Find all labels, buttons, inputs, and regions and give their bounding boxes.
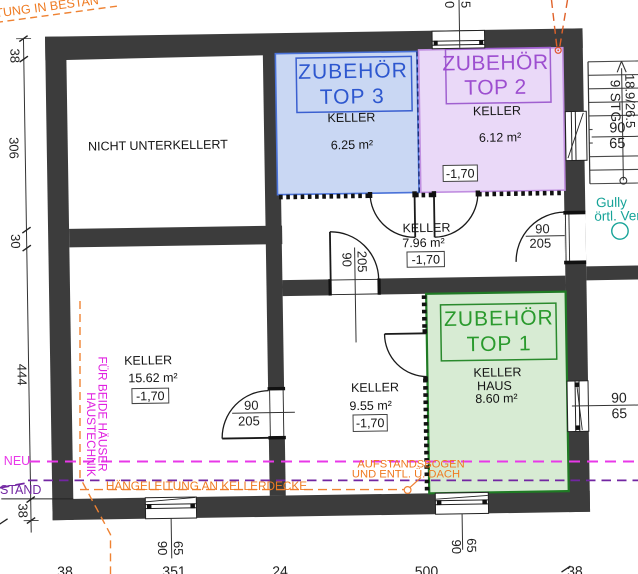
svg-text:444: 444 [14, 364, 29, 386]
svg-text:65: 65 [171, 541, 186, 556]
svg-text:KELLER: KELLER [351, 380, 399, 395]
svg-text:-1,70: -1,70 [136, 389, 165, 403]
svg-text:24: 24 [272, 563, 288, 574]
svg-text:-1,70: -1,70 [446, 167, 475, 181]
svg-text:65: 65 [611, 405, 627, 421]
svg-text:8.60 m²: 8.60 m² [475, 391, 518, 406]
svg-text:6.12 m²: 6.12 m² [479, 130, 522, 145]
svg-text:5: 5 [458, 1, 473, 8]
svg-text:38: 38 [7, 48, 22, 63]
svg-text:351: 351 [162, 563, 186, 574]
svg-text:KELLER: KELLER [327, 110, 375, 125]
svg-text:65: 65 [464, 538, 479, 553]
svg-text:306: 306 [6, 137, 21, 159]
svg-text:TOP 3: TOP 3 [320, 85, 385, 109]
svg-text:E NEU: E NEU [0, 454, 30, 468]
svg-text:TOP 1: TOP 1 [466, 332, 531, 356]
svg-text:90: 90 [155, 541, 170, 556]
svg-text:KELLER: KELLER [124, 353, 172, 368]
svg-text:NICHT UNTERKELLERT: NICHT UNTERKELLERT [88, 137, 228, 153]
svg-text:90: 90 [611, 389, 627, 405]
svg-text:KELLER: KELLER [402, 221, 450, 236]
svg-text:KELLER: KELLER [473, 104, 521, 119]
svg-text:HAUSTECHNIK: HAUSTECHNIK [84, 392, 98, 477]
svg-text:-1,70: -1,70 [356, 416, 385, 430]
svg-text:HÄNGELEITUNG AN KELLERDECKE: HÄNGELEITUNG AN KELLERDECKE [106, 479, 307, 493]
svg-text:38: 38 [15, 503, 30, 518]
svg-text:500: 500 [415, 563, 439, 574]
svg-text:38: 38 [57, 563, 73, 574]
svg-text:205: 205 [529, 236, 551, 251]
svg-text:9 STG: 9 STG [608, 80, 624, 123]
svg-text:7.96 m²: 7.96 m² [402, 236, 445, 251]
svg-text:0: 0 [442, 1, 457, 8]
svg-text:90: 90 [244, 398, 259, 413]
svg-text:65: 65 [609, 136, 625, 152]
svg-text:6.25 m²: 6.25 m² [331, 138, 374, 153]
svg-text:UND ENTL. Ü. DACH: UND ENTL. Ü. DACH [352, 469, 460, 481]
svg-text:90: 90 [449, 539, 464, 554]
svg-text:örtl. Ver: örtl. Ver [594, 208, 638, 224]
svg-text:15.62 m²: 15.62 m² [128, 371, 178, 386]
svg-text:90: 90 [609, 120, 625, 136]
svg-text:ZUBEHÖR: ZUBEHÖR [444, 306, 554, 331]
svg-text:9.55 m²: 9.55 m² [349, 398, 392, 413]
svg-text:30: 30 [8, 234, 23, 249]
svg-text:90: 90 [535, 221, 550, 236]
svg-text:-1,70: -1,70 [411, 253, 440, 267]
svg-text:ZUBEHÖR: ZUBEHÖR [298, 59, 408, 84]
svg-text:205: 205 [238, 413, 260, 428]
svg-text:KELLER: KELLER [473, 365, 521, 380]
svg-text:ZUBEHÖR: ZUBEHÖR [442, 51, 549, 76]
svg-text:90: 90 [339, 252, 354, 267]
svg-text:TOP 2: TOP 2 [464, 76, 527, 100]
svg-text:STAND: STAND [0, 483, 41, 497]
svg-text:38: 38 [567, 563, 583, 574]
svg-text:205: 205 [355, 251, 370, 273]
